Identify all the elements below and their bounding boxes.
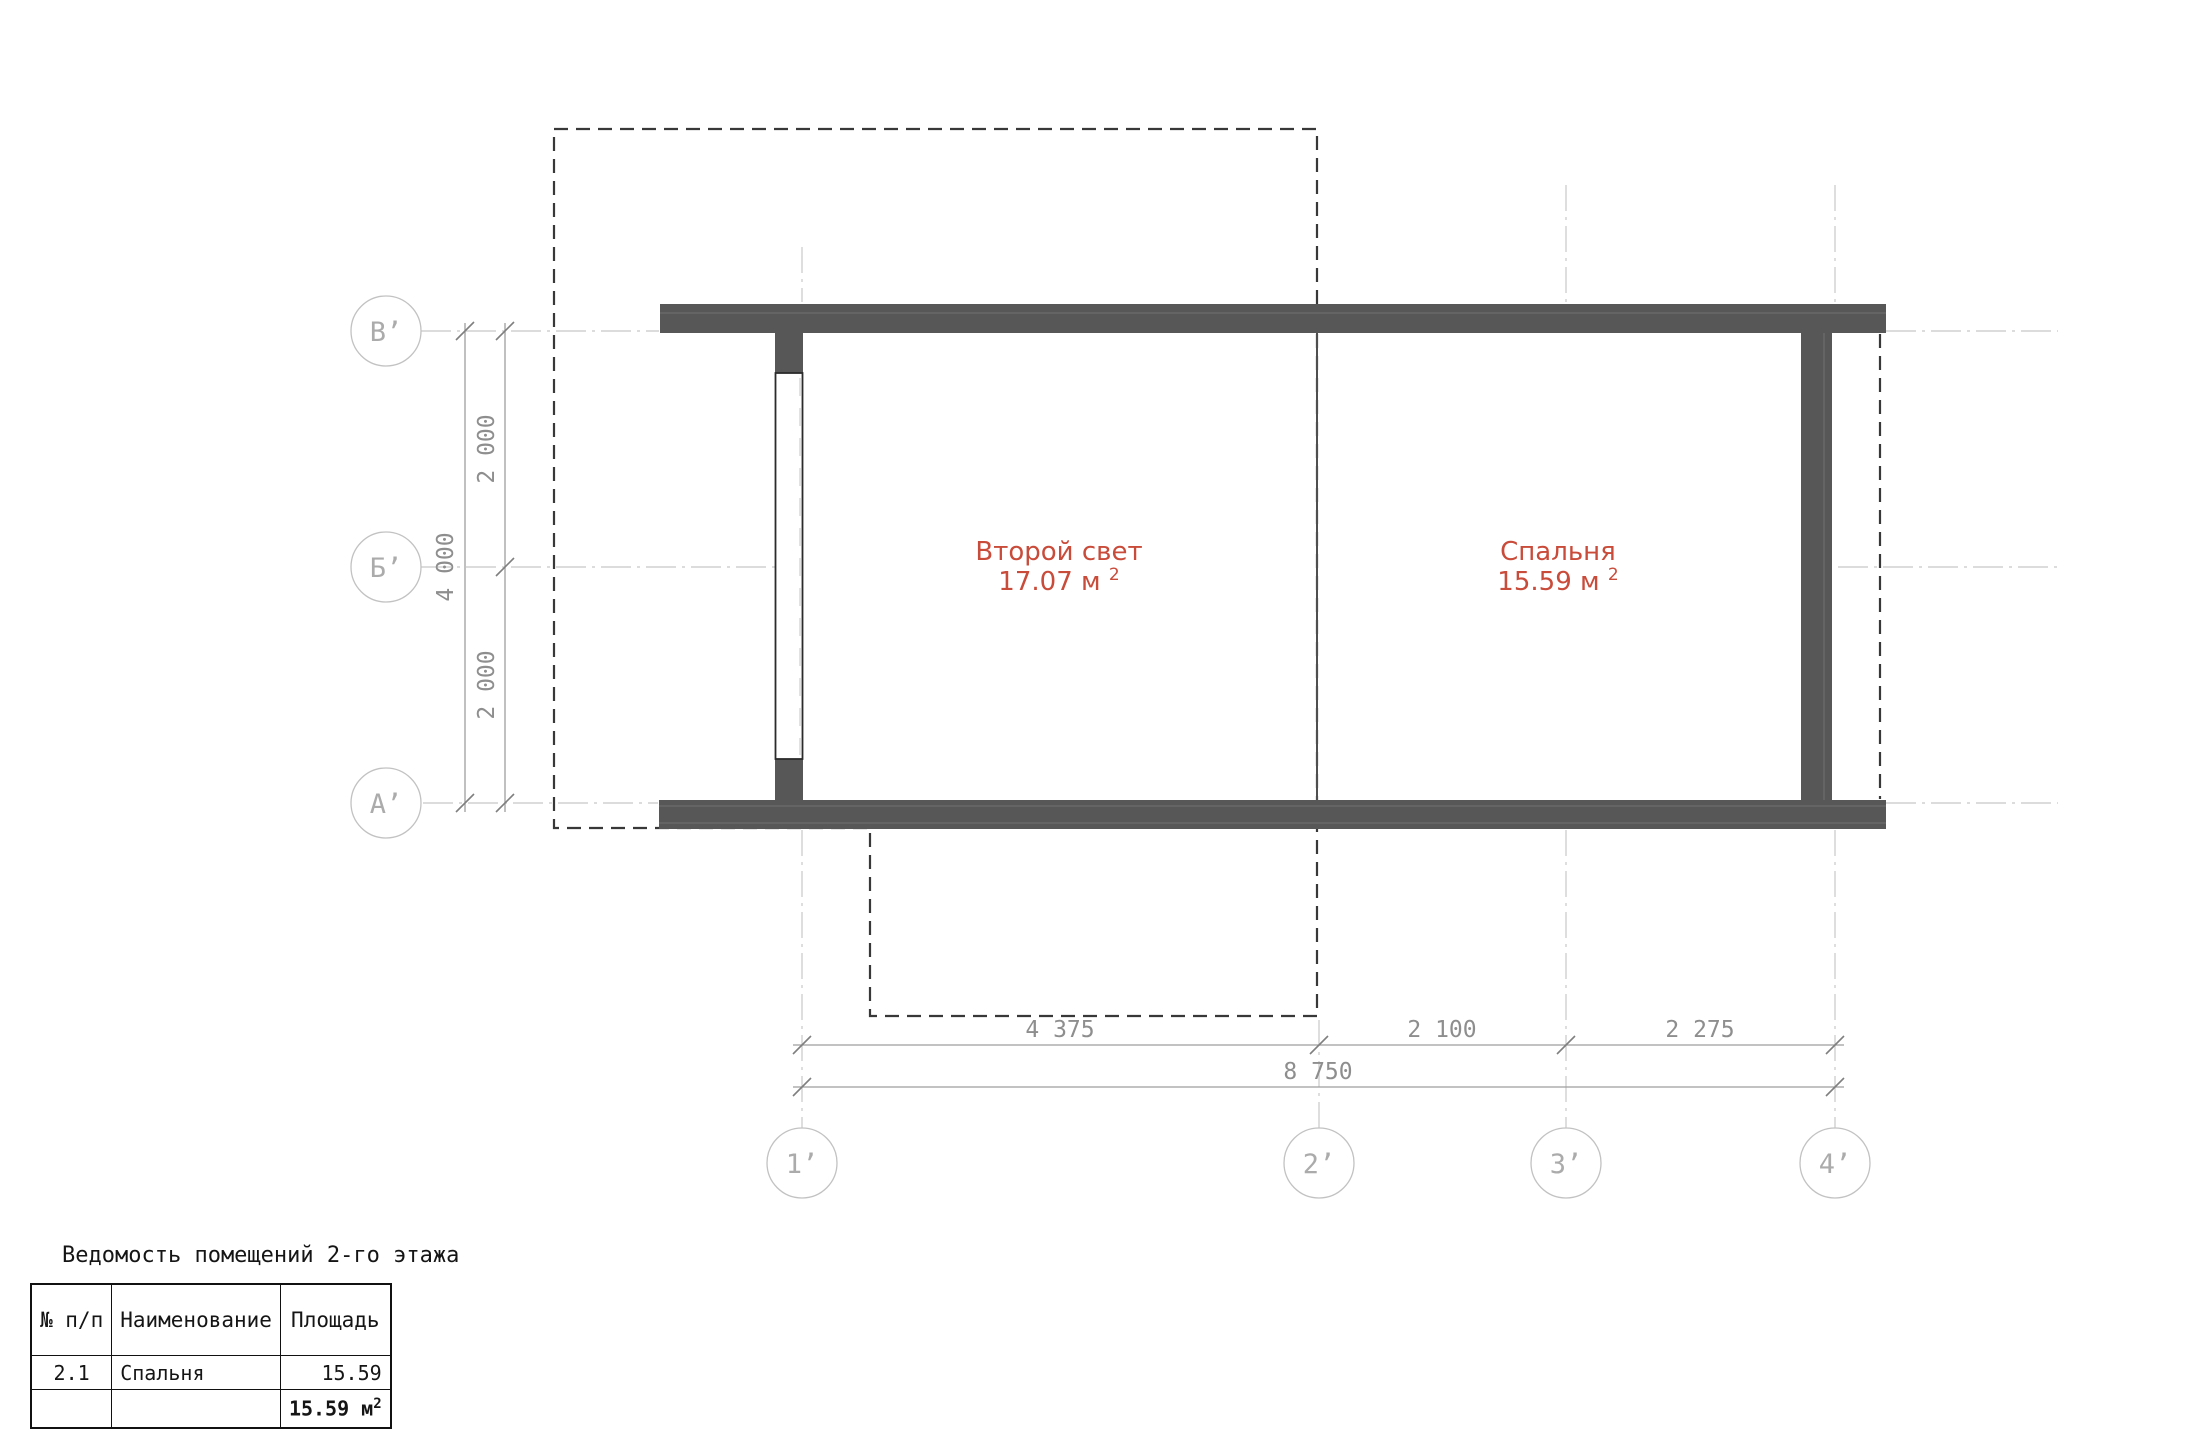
dashed-footprint-outline [554, 129, 1880, 1016]
grid-bubble-Bb-label: Б’ [370, 553, 403, 584]
dim-label-v-total: 4 000 [433, 532, 459, 601]
room-area-sup: 2 [1109, 565, 1120, 585]
schedule-cell-name: Спальня [112, 1356, 281, 1390]
room-area-sup: 2 [1608, 565, 1619, 585]
grid-bubbles-left: В’ Б’ А’ [351, 296, 421, 838]
dim-label-v-seg2: 2 000 [474, 650, 500, 719]
grid-bubble-1-label: 1’ [786, 1149, 819, 1180]
room-area-bedroom: 15.59 м 2 [1497, 565, 1618, 597]
schedule-total-cell: 15.59 м2 [280, 1390, 390, 1429]
schedule-cell-empty [112, 1390, 281, 1429]
schedule-cell-empty [31, 1390, 112, 1429]
room-label-second-light: Второй свет [975, 537, 1142, 567]
schedule-total-sup: 2 [373, 1396, 381, 1412]
dim-label-v-seg1: 2 000 [474, 414, 500, 483]
dim-label-h-seg3: 2 275 [1665, 1017, 1734, 1043]
schedule-table: № п/п Наименование Площадь 2.1 Спальня 1… [30, 1283, 392, 1429]
schedule-header-row: № п/п Наименование Площадь [31, 1284, 391, 1356]
grid-bubble-3-label: 3’ [1550, 1149, 1583, 1180]
wall-right [1801, 333, 1832, 800]
wall-top [660, 304, 1886, 333]
floor-plan-drawing: 4 000 2 000 2 000 4 375 2 100 2 275 8 75… [0, 0, 2209, 1453]
window-frame [776, 373, 803, 759]
dim-label-h-total: 8 750 [1283, 1059, 1352, 1085]
schedule-header-name: Наименование [112, 1284, 281, 1356]
schedule-total-row: 15.59 м2 [31, 1390, 391, 1429]
wall-left-pier-bottom [775, 759, 803, 800]
grid-bubble-2-label: 2’ [1303, 1149, 1336, 1180]
window-left [776, 373, 803, 759]
room-area-value: 17.07 м [998, 567, 1100, 597]
room-area-value: 15.59 м [1497, 567, 1599, 597]
walls [659, 304, 1886, 829]
wall-left-pier-top [775, 333, 803, 373]
room-labels: Второй свет 17.07 м 2 Спальня 15.59 м 2 [975, 537, 1618, 597]
floor-plan-stage: 4 000 2 000 2 000 4 375 2 100 2 275 8 75… [0, 0, 2209, 1453]
wall-bottom [659, 800, 1886, 829]
room-area-second-light: 17.07 м 2 [998, 565, 1119, 597]
grid-bubble-B-label: В’ [370, 317, 403, 348]
dim-label-h-seg2: 2 100 [1407, 1017, 1476, 1043]
schedule-row: 2.1 Спальня 15.59 [31, 1356, 391, 1390]
schedule-header-area: Площадь [280, 1284, 390, 1356]
grid-bubble-4-label: 4’ [1819, 1149, 1852, 1180]
schedule-total-value: 15.59 м [289, 1397, 373, 1421]
room-label-bedroom: Спальня [1500, 537, 1616, 567]
grid-bubble-A-label: А’ [370, 789, 403, 820]
dashed-footprint-path [554, 129, 1317, 1016]
schedule-header-num: № п/п [31, 1284, 112, 1356]
grid-bubbles-bottom: 1’ 2’ 3’ 4’ [767, 1128, 1870, 1198]
schedule-cell-area: 15.59 [280, 1356, 390, 1390]
schedule-title: Ведомость помещений 2-го этажа [62, 1243, 459, 1268]
schedule-cell-num: 2.1 [31, 1356, 112, 1390]
dim-label-h-seg1: 4 375 [1025, 1017, 1094, 1043]
